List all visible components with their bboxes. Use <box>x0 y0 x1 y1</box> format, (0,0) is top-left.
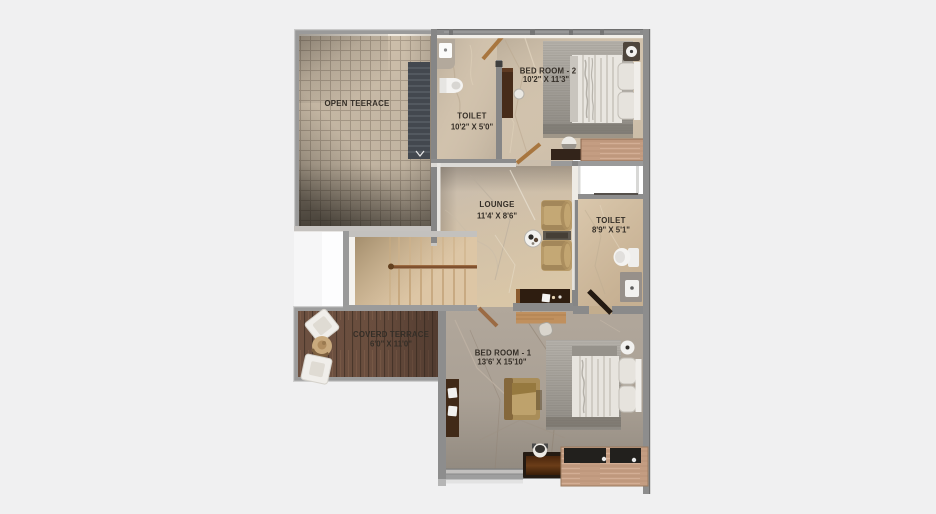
svg-text:LOUNGE: LOUNGE <box>479 200 514 209</box>
svg-text:COVERD TERRACE: COVERD TERRACE <box>353 330 429 339</box>
svg-text:10'2" X 11'3": 10'2" X 11'3" <box>523 75 570 84</box>
svg-text:TOILET: TOILET <box>596 216 625 225</box>
svg-text:BED ROOM - 1: BED ROOM - 1 <box>475 349 532 358</box>
svg-text:11'4' X 8'6": 11'4' X 8'6" <box>477 212 517 221</box>
svg-text:8'9" X 5'1": 8'9" X 5'1" <box>592 226 630 235</box>
svg-text:13'6' X 15'10": 13'6' X 15'10" <box>477 358 526 367</box>
svg-text:10'2" X 5'0": 10'2" X 5'0" <box>451 123 494 132</box>
svg-text:TOILET: TOILET <box>457 112 486 121</box>
svg-text:OPEN TEERACE: OPEN TEERACE <box>324 99 389 108</box>
svg-text:6'0" X 11'0": 6'0" X 11'0" <box>370 340 412 349</box>
